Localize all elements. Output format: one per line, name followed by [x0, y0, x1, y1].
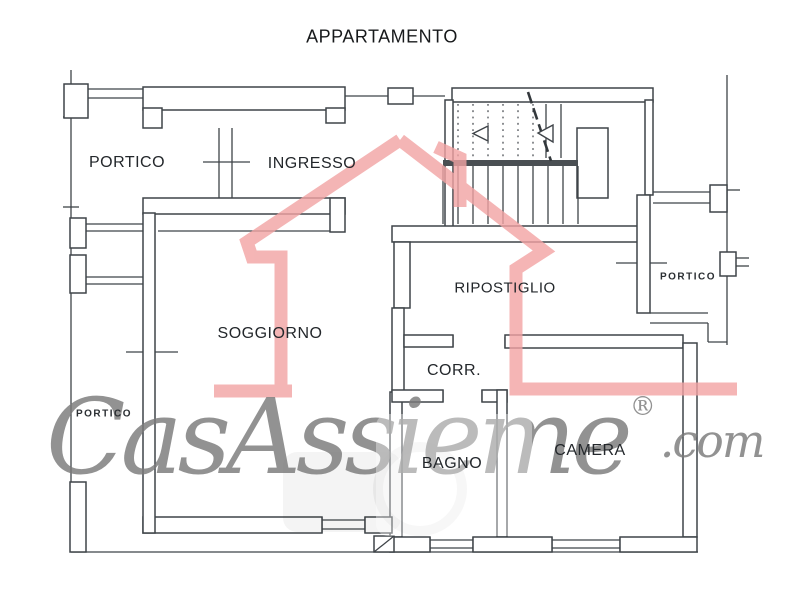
room-label-ingresso: INGRESSO [268, 155, 356, 173]
room-label-camera: CAMERA [554, 442, 625, 460]
room-label-portico-right: PORTICO [660, 272, 716, 283]
room-label-portico-left: PORTICO [76, 409, 132, 420]
room-label-soggiorno: SOGGIORNO [218, 325, 323, 343]
room-label-bagno: BAGNO [422, 455, 482, 473]
floor-plan-page: CasAssieme®.com APPARTAMENTO PORTICO ING… [0, 0, 800, 600]
room-label-corridoio: CORR. [427, 362, 481, 380]
room-label-ripostiglio: RIPOSTIGLIO [454, 280, 555, 297]
room-label-portico-top-left: PORTICO [89, 154, 165, 172]
room-labels: APPARTAMENTO PORTICO INGRESSO RIPOSTIGLI… [0, 0, 800, 600]
plan-title: APPARTAMENTO [306, 27, 458, 48]
